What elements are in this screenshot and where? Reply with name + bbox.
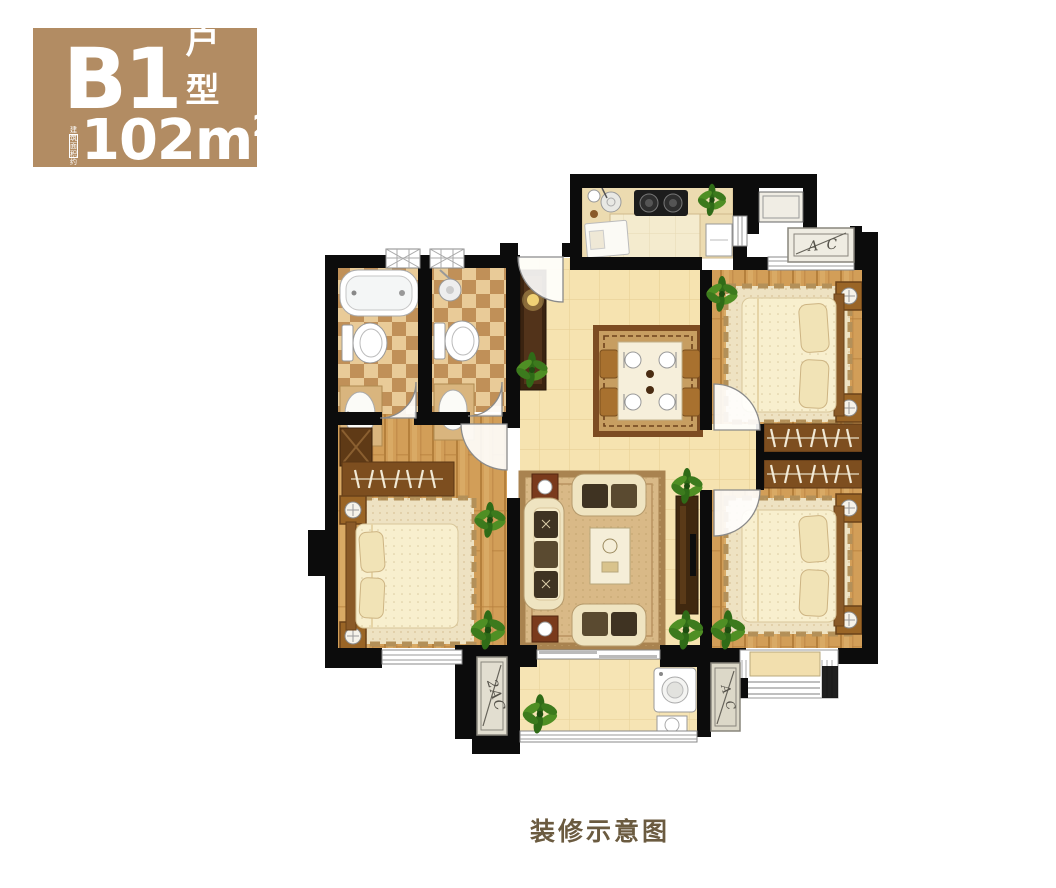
toilet-icon (342, 323, 387, 363)
bedroom-3 (742, 494, 862, 634)
area-note-line2: 面积约 (70, 142, 77, 166)
wall-pier (308, 530, 325, 576)
plan-caption: 装修示意图 (530, 812, 670, 848)
place-setting-icon (659, 352, 675, 368)
dining-chair (600, 388, 618, 416)
unit-badge: B1 户型 建 筑 面积约 102m 2 (33, 28, 257, 167)
ac-platform-bottom-left: 2AC (477, 657, 508, 735)
kitchen-sink-icon (601, 192, 621, 212)
nightstand (340, 496, 366, 524)
area-note-line1: 建 筑 (70, 126, 77, 142)
dining-chair (600, 350, 618, 378)
place-setting-icon (659, 394, 675, 410)
kitchen-window (733, 216, 747, 246)
bowl-icon (590, 210, 598, 218)
sofa-cushion (582, 484, 608, 508)
pillow (799, 569, 829, 616)
pillow (799, 359, 829, 408)
lamp-icon (538, 480, 552, 494)
sofa-cushion (534, 541, 558, 568)
lamp-icon (538, 622, 552, 636)
bay-window (738, 650, 838, 698)
ac-label-top-right: A C (805, 236, 840, 255)
bath-vent (386, 249, 420, 268)
bedroom-2 (742, 282, 862, 422)
unit-title-row: B1 户型 (33, 30, 257, 118)
downlight-icon (527, 294, 539, 306)
coffee-table (590, 528, 630, 584)
unit-type-label: 户型 (185, 14, 257, 112)
service-niche (759, 192, 803, 222)
pillow (798, 515, 829, 563)
pillow (359, 531, 386, 573)
sofa-cushion (582, 612, 608, 636)
sofa-cushion (611, 612, 637, 636)
floorplan-page: B1 户型 建 筑 面积约 102m 2 装修示意图 (0, 0, 1056, 888)
place-setting-icon (625, 352, 641, 368)
tv-icon (690, 534, 696, 576)
sofa-cushion (611, 484, 637, 508)
area-value: 102m (81, 114, 252, 167)
bed-headboard (346, 522, 356, 630)
bedroom-1-window (382, 650, 462, 664)
area-note-box: 建 筑 面积约 (69, 134, 78, 158)
toilet-icon (434, 321, 479, 361)
dining-chair (682, 388, 700, 416)
bath-vent (430, 249, 464, 268)
ac-platform-top-right: A C (788, 228, 854, 262)
dining-chair (682, 350, 700, 378)
hallway-floor (700, 424, 762, 490)
place-setting-icon (625, 394, 641, 410)
ac-platform-bottom-right: A C (711, 663, 740, 731)
dish-icon (588, 190, 600, 202)
balcony-window (520, 731, 697, 742)
balcony-sliding-door (537, 650, 660, 659)
unit-code: B1 (63, 41, 179, 118)
pillow (798, 303, 829, 353)
pillow (359, 577, 385, 618)
area-superscript: 2 (252, 109, 272, 143)
